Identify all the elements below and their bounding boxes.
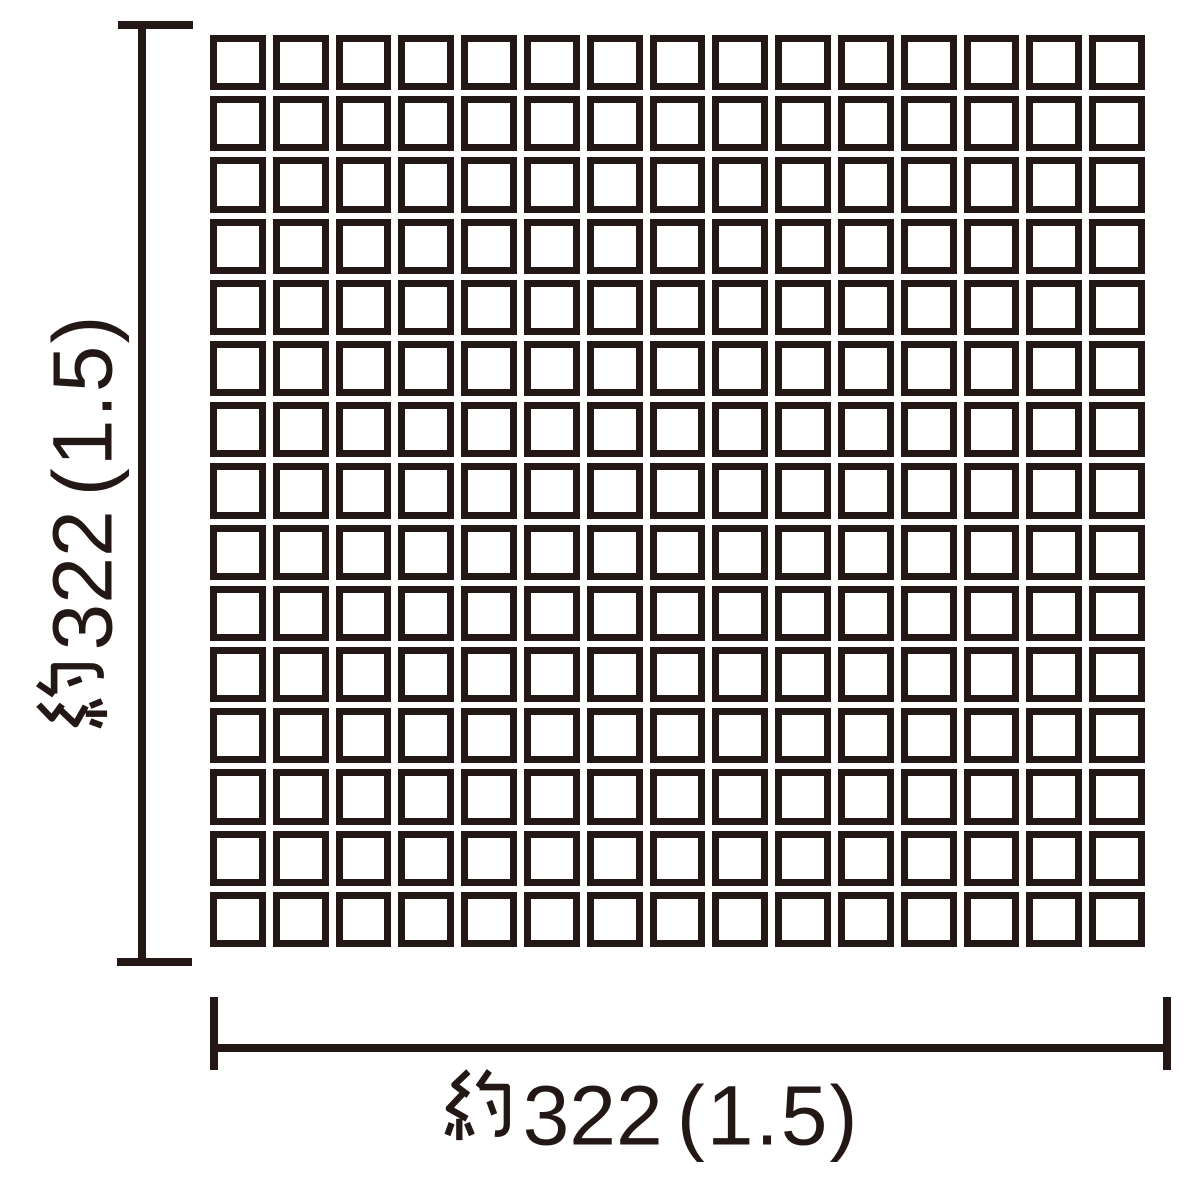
mosaic-tile: [964, 157, 1020, 212]
mosaic-tile: [964, 647, 1020, 702]
mosaic-tile: [336, 769, 392, 824]
mosaic-tile: [775, 525, 831, 580]
mosaic-tile: [775, 219, 831, 274]
mosaic-tile: [398, 402, 454, 457]
mosaic-tile: [901, 219, 957, 274]
mosaic-tile: [461, 219, 517, 274]
mosaic-tile: [336, 892, 392, 947]
mosaic-tile: [650, 35, 706, 90]
mosaic-tile: [587, 219, 643, 274]
mosaic-tile: [712, 157, 768, 212]
mosaic-tile: [461, 647, 517, 702]
mosaic-tile: [838, 402, 894, 457]
mosaic-tile: [964, 586, 1020, 641]
mosaic-tile: [587, 157, 643, 212]
mosaic-tile: [1089, 892, 1145, 947]
mosaic-tile: [461, 831, 517, 886]
mosaic-tile: [398, 96, 454, 151]
horizontal-dimension-tick-right: [1163, 997, 1171, 1070]
mosaic-tile: [775, 647, 831, 702]
mosaic-tile: [650, 525, 706, 580]
mosaic-tile: [712, 525, 768, 580]
mosaic-tile: [398, 892, 454, 947]
mosaic-tile: [838, 892, 894, 947]
mosaic-tile: [336, 525, 392, 580]
mosaic-tile: [1089, 525, 1145, 580]
mosaic-tile: [964, 831, 1020, 886]
mosaic-tile: [1026, 708, 1082, 763]
mosaic-tile: [650, 586, 706, 641]
mosaic-tile: [775, 463, 831, 518]
mosaic-tile: [838, 96, 894, 151]
mosaic-tile: [461, 341, 517, 396]
mosaic-tile: [650, 463, 706, 518]
mosaic-tile: [524, 219, 580, 274]
mosaic-tile: [524, 647, 580, 702]
mosaic-tile: [650, 280, 706, 335]
mosaic-tile: [273, 831, 329, 886]
mosaic-tile: [1089, 157, 1145, 212]
mosaic-tile: [210, 35, 266, 90]
mosaic-tile: [210, 769, 266, 824]
mosaic-tile: [1089, 769, 1145, 824]
mosaic-tile: [650, 708, 706, 763]
mosaic-tile: [210, 157, 266, 212]
mosaic-tile: [650, 402, 706, 457]
mosaic-tile: [524, 708, 580, 763]
mosaic-tile: [1026, 96, 1082, 151]
mosaic-tile: [336, 157, 392, 212]
mosaic-tile: [901, 463, 957, 518]
mosaic-tile: [964, 35, 1020, 90]
mosaic-tile: [1089, 831, 1145, 886]
mosaic-tile: [587, 708, 643, 763]
mosaic-tile: [1026, 219, 1082, 274]
mosaic-tile: [587, 341, 643, 396]
mosaic-tile: [398, 525, 454, 580]
mosaic-tile: [901, 341, 957, 396]
mosaic-tile: [524, 586, 580, 641]
mosaic-tile: [336, 96, 392, 151]
horizontal-dimension-tick-left: [210, 997, 218, 1070]
mosaic-tile: [587, 892, 643, 947]
mosaic-tile: [964, 341, 1020, 396]
mosaic-tile: [210, 708, 266, 763]
mosaic-tile: [273, 463, 329, 518]
mosaic-tile: [775, 402, 831, 457]
mosaic-tile: [650, 892, 706, 947]
mosaic-tile: [901, 525, 957, 580]
mosaic-tile: [712, 892, 768, 947]
mosaic-tile: [1089, 647, 1145, 702]
mosaic-tile: [398, 280, 454, 335]
mosaic-tile: [587, 769, 643, 824]
mosaic-tile: [461, 892, 517, 947]
mosaic-tile: [1026, 463, 1082, 518]
mosaic-tile: [273, 157, 329, 212]
mosaic-tile: [901, 35, 957, 90]
mosaic-tile: [336, 341, 392, 396]
mosaic-tile: [1026, 769, 1082, 824]
mosaic-tile: [1026, 402, 1082, 457]
mosaic-tile: [587, 402, 643, 457]
mosaic-tile: [712, 831, 768, 886]
mosaic-tile: [650, 341, 706, 396]
mosaic-tile: [398, 769, 454, 824]
vertical-dimension-line: [138, 25, 146, 962]
mosaic-tile: [838, 525, 894, 580]
mosaic-tile: [838, 219, 894, 274]
mosaic-tile: [210, 831, 266, 886]
mosaic-tile: [901, 892, 957, 947]
mosaic-tile: [775, 831, 831, 886]
mosaic-tile: [461, 157, 517, 212]
mosaic-tile: [1026, 831, 1082, 886]
mosaic-tile: [210, 96, 266, 151]
mosaic-tile: [461, 402, 517, 457]
mosaic-tile: [587, 586, 643, 641]
kanji-yaku-approx-icon: [443, 1067, 517, 1145]
mosaic-tile: [901, 586, 957, 641]
mosaic-tile: [650, 219, 706, 274]
mosaic-tile: [398, 586, 454, 641]
mosaic-tile: [901, 96, 957, 151]
mosaic-tile: [461, 463, 517, 518]
mosaic-tile: [650, 157, 706, 212]
mosaic-tile: [775, 341, 831, 396]
vertical-dimension-label: 322 (1.5): [34, 314, 125, 731]
mosaic-tile: [775, 892, 831, 947]
mosaic-tile: [712, 96, 768, 151]
mosaic-tile: [775, 586, 831, 641]
mosaic-tile: [901, 769, 957, 824]
mosaic-tile: [712, 35, 768, 90]
mosaic-tile: [336, 219, 392, 274]
mosaic-tile: [712, 463, 768, 518]
mosaic-tile: [712, 341, 768, 396]
mosaic-tile: [901, 402, 957, 457]
mosaic-tile: [273, 35, 329, 90]
mosaic-tile: [587, 647, 643, 702]
mosaic-tile: [210, 219, 266, 274]
mosaic-tile: [712, 708, 768, 763]
mosaic-tile: [901, 280, 957, 335]
mosaic-tile: [461, 280, 517, 335]
mosaic-tile: [712, 280, 768, 335]
mosaic-tile: [1026, 586, 1082, 641]
mosaic-tile: [524, 525, 580, 580]
mosaic-tile: [524, 157, 580, 212]
mosaic-tile: [964, 402, 1020, 457]
mosaic-tile: [210, 341, 266, 396]
mosaic-tile: [524, 831, 580, 886]
mosaic-tile: [1026, 157, 1082, 212]
mosaic-tile: [775, 35, 831, 90]
mosaic-tile: [964, 892, 1020, 947]
mosaic-tile: [901, 157, 957, 212]
mosaic-tile: [712, 647, 768, 702]
mosaic-tile: [273, 892, 329, 947]
mosaic-tile: [524, 280, 580, 335]
mosaic-tile: [587, 831, 643, 886]
mosaic-tile: [398, 647, 454, 702]
vertical-dimension-tick-top: [118, 21, 193, 29]
mosaic-tile: [712, 769, 768, 824]
mosaic-tile: [524, 769, 580, 824]
mosaic-tile: [273, 341, 329, 396]
mosaic-tile: [461, 708, 517, 763]
mosaic-tile: [1026, 341, 1082, 396]
mosaic-tile: [838, 157, 894, 212]
kanji-yaku-strokes: [38, 666, 107, 725]
mosaic-tile: [336, 402, 392, 457]
horizontal-dimension-paren-value: (1.5): [677, 1074, 860, 1158]
mosaic-tile: [775, 769, 831, 824]
mosaic-tile: [336, 280, 392, 335]
mosaic-tile: [273, 586, 329, 641]
kanji-yaku-approx-icon: [34, 656, 112, 730]
mosaic-tile: [524, 341, 580, 396]
mosaic-tile: [461, 586, 517, 641]
mosaic-tile: [838, 341, 894, 396]
mosaic-tile: [838, 35, 894, 90]
mosaic-tile: [210, 647, 266, 702]
mosaic-tile: [775, 96, 831, 151]
horizontal-dimension-label: 322 (1.5): [443, 1067, 860, 1158]
mosaic-tile: [775, 280, 831, 335]
mosaic-tile: [273, 647, 329, 702]
mosaic-tile: [210, 892, 266, 947]
mosaic-tile: [210, 525, 266, 580]
mosaic-tile: [273, 402, 329, 457]
mosaic-tile: [210, 463, 266, 518]
mosaic-tile: [461, 525, 517, 580]
mosaic-tile: [336, 35, 392, 90]
mosaic-tile: [964, 525, 1020, 580]
mosaic-tile: [838, 463, 894, 518]
mosaic-tile: [712, 402, 768, 457]
mosaic-tile: [1089, 35, 1145, 90]
mosaic-tile: [1026, 647, 1082, 702]
mosaic-tile: [1089, 402, 1145, 457]
mosaic-tile: [210, 280, 266, 335]
mosaic-tile: [1026, 35, 1082, 90]
mosaic-tile: [461, 35, 517, 90]
mosaic-tile: [524, 892, 580, 947]
mosaic-tile: [398, 341, 454, 396]
mosaic-tile: [964, 280, 1020, 335]
mosaic-tile: [712, 219, 768, 274]
mosaic-tile: [838, 647, 894, 702]
mosaic-tile: [838, 831, 894, 886]
mosaic-tile: [587, 96, 643, 151]
mosaic-tile: [964, 708, 1020, 763]
mosaic-tile: [964, 219, 1020, 274]
mosaic-tile: [587, 280, 643, 335]
mosaic-tile: [273, 708, 329, 763]
mosaic-tile: [650, 647, 706, 702]
mosaic-tile: [336, 463, 392, 518]
kanji-yaku-strokes: [447, 1071, 506, 1140]
mosaic-tile: [461, 96, 517, 151]
mosaic-tile: [398, 708, 454, 763]
tile-sheet-dimension-diagram: 322 (1.5) 322 (1.5): [0, 0, 1200, 1200]
mosaic-tile: [838, 280, 894, 335]
mosaic-tile: [838, 708, 894, 763]
mosaic-tile: [524, 463, 580, 518]
mosaic-tile: [650, 96, 706, 151]
mosaic-tile: [587, 35, 643, 90]
mosaic-tile: [650, 769, 706, 824]
vertical-dimension-value: 322: [41, 510, 125, 650]
mosaic-tile: [273, 219, 329, 274]
mosaic-tile: [587, 525, 643, 580]
mosaic-tile: [273, 769, 329, 824]
mosaic-tile: [210, 586, 266, 641]
mosaic-tile: [587, 463, 643, 518]
mosaic-tile: [398, 219, 454, 274]
mosaic-tile: [210, 402, 266, 457]
mosaic-tile: [964, 769, 1020, 824]
mosaic-tile: [336, 708, 392, 763]
mosaic-tile: [461, 769, 517, 824]
mosaic-tile: [398, 35, 454, 90]
mosaic-tile: [650, 831, 706, 886]
mosaic-tile: [273, 525, 329, 580]
mosaic-tile: [1089, 708, 1145, 763]
mosaic-tile: [524, 96, 580, 151]
mosaic-tile: [1026, 525, 1082, 580]
mosaic-tile: [398, 831, 454, 886]
mosaic-tile: [336, 586, 392, 641]
mosaic-tile: [273, 280, 329, 335]
mosaic-tile: [838, 586, 894, 641]
mosaic-tile: [398, 157, 454, 212]
mosaic-tile: [964, 96, 1020, 151]
mosaic-tile: [398, 463, 454, 518]
mosaic-tile: [838, 769, 894, 824]
mosaic-tile: [901, 708, 957, 763]
mosaic-tile: [901, 647, 957, 702]
mosaic-tile: [273, 96, 329, 151]
mosaic-tile: [336, 647, 392, 702]
mosaic-tile: [336, 831, 392, 886]
mosaic-tile: [775, 708, 831, 763]
mosaic-tile: [1089, 280, 1145, 335]
mosaic-tile: [524, 402, 580, 457]
mosaic-tile: [1089, 341, 1145, 396]
vertical-dimension-paren-value: (1.5): [41, 314, 125, 497]
mosaic-tile: [775, 157, 831, 212]
mosaic-tile: [1026, 892, 1082, 947]
mosaic-tile: [524, 35, 580, 90]
mosaic-tile: [712, 586, 768, 641]
mosaic-tile: [1026, 280, 1082, 335]
mosaic-tile: [1089, 219, 1145, 274]
mosaic-tile: [1089, 96, 1145, 151]
mosaic-tile: [901, 831, 957, 886]
mosaic-tile: [1089, 463, 1145, 518]
horizontal-dimension-line: [214, 1044, 1167, 1052]
mosaic-tile: [964, 463, 1020, 518]
mosaic-grid: [210, 35, 1145, 947]
mosaic-tile: [1089, 586, 1145, 641]
horizontal-dimension-value: 322: [523, 1074, 663, 1158]
vertical-dimension-tick-bottom: [117, 958, 192, 966]
